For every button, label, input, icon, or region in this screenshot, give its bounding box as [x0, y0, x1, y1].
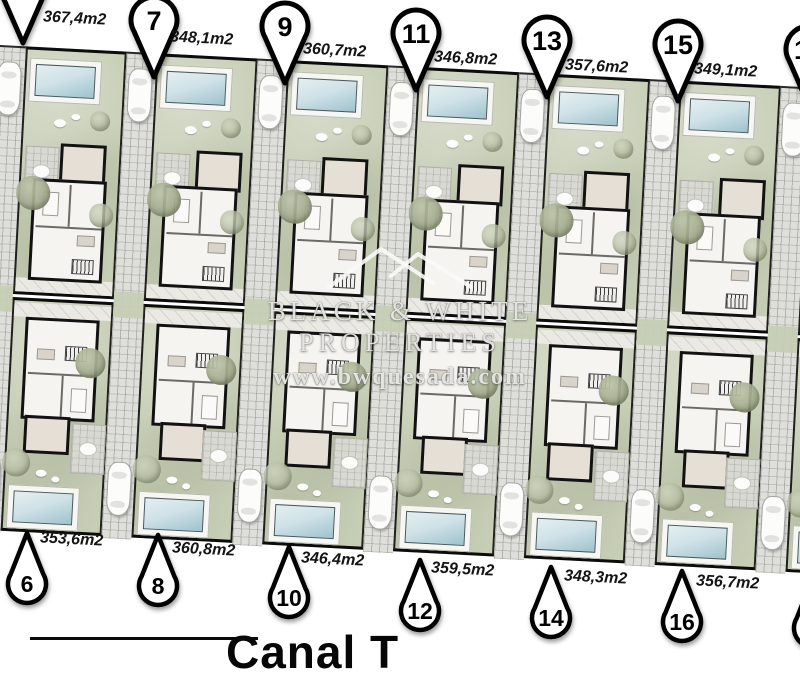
car-bottom: [498, 482, 525, 537]
car-rear-window: [372, 514, 387, 522]
svg-text:13: 13: [532, 26, 562, 56]
interior-wall: [68, 185, 72, 227]
stone: [725, 148, 734, 154]
car-rear-window: [785, 141, 800, 149]
car-windshield: [111, 471, 126, 479]
tree: [89, 203, 114, 228]
table: [469, 256, 488, 268]
tree: [656, 482, 685, 511]
tree: [394, 468, 423, 497]
car-rear-window: [392, 121, 407, 129]
stone: [559, 497, 570, 505]
stone: [51, 476, 59, 482]
driveway-planting: [244, 298, 275, 326]
tree: [220, 118, 241, 139]
patio-table: [80, 443, 97, 456]
pool-deck: [398, 505, 472, 553]
plot-top: [536, 74, 650, 327]
house-lower-room: [159, 422, 207, 462]
car-rear-window: [0, 100, 15, 108]
car-bottom: [236, 468, 263, 523]
house-lower-room: [23, 415, 71, 455]
stone: [464, 134, 473, 140]
stone: [185, 126, 197, 135]
tree: [481, 223, 506, 248]
svg-text:5: 5: [15, 0, 30, 2]
tree: [206, 354, 238, 386]
stairs: [202, 266, 225, 282]
swimming-pool: [404, 511, 466, 546]
tree: [90, 111, 111, 132]
table: [207, 242, 226, 254]
interior-wall: [591, 212, 595, 254]
car-rear-window: [131, 107, 146, 115]
bed: [724, 422, 741, 447]
table: [77, 235, 96, 247]
table: [731, 270, 750, 282]
plot-area-10: 346,4m2: [301, 549, 365, 570]
plot-area-15: 349,1m2: [694, 60, 758, 81]
car-windshield: [655, 105, 670, 113]
stone: [333, 128, 342, 134]
svg-text:14: 14: [538, 605, 564, 631]
car-bottom: [106, 461, 133, 516]
plot-area-7: 348,1m2: [170, 28, 234, 49]
plot-area-13: 357,6m2: [565, 56, 629, 77]
plot-bottom: [655, 331, 768, 570]
car-top: [0, 61, 22, 116]
tree: [219, 210, 244, 235]
stone: [446, 140, 458, 149]
interior-wall: [460, 205, 464, 247]
car-windshield: [504, 492, 519, 500]
swimming-pool: [143, 497, 205, 532]
driveway-planting: [505, 312, 536, 340]
car-rear-window: [633, 528, 648, 536]
car-rear-window: [764, 535, 779, 543]
street-label: Canal T: [226, 625, 399, 679]
table: [560, 376, 579, 388]
pool-deck: [791, 525, 800, 573]
plot-area-6: 353,6m2: [40, 529, 104, 550]
driveway-planting: [636, 319, 667, 347]
stone: [54, 119, 66, 128]
interior-wall: [59, 376, 63, 420]
stone: [315, 133, 327, 142]
stone: [574, 504, 582, 510]
house-lower-room: [682, 449, 730, 489]
car-windshield: [373, 485, 388, 493]
plot-area-11: 346,8m2: [434, 48, 498, 69]
stone: [35, 469, 46, 477]
svg-text:12: 12: [407, 598, 433, 624]
plot-pin-17: 17: [779, 19, 800, 111]
bed: [332, 402, 349, 427]
svg-text:6: 6: [21, 571, 34, 597]
svg-text:9: 9: [277, 12, 292, 42]
tree: [612, 230, 637, 255]
plot-bottom: [524, 324, 637, 563]
table: [429, 369, 448, 381]
patio-table: [734, 477, 751, 490]
driveway-planting: [375, 305, 406, 333]
car-bottom: [367, 475, 394, 530]
patio-table: [341, 456, 358, 469]
svg-text:7: 7: [146, 6, 161, 36]
stone: [690, 504, 701, 512]
svg-text:10: 10: [276, 585, 302, 611]
tree: [482, 131, 503, 152]
interior-wall: [714, 410, 718, 454]
house-lower-room: [284, 429, 332, 469]
car-windshield: [1, 71, 16, 79]
site-plan: [0, 45, 800, 580]
bed: [70, 388, 87, 413]
plot-area-8: 360,8m2: [172, 539, 236, 560]
interior-wall: [722, 219, 726, 261]
driveway-planting: [113, 291, 144, 319]
house-lower-room: [420, 436, 468, 476]
stone: [577, 146, 589, 155]
car-windshield: [786, 112, 800, 120]
site-plan-page: { "brand": { "line1": "BLACK & WHITE", "…: [0, 0, 800, 640]
car-windshield: [766, 506, 781, 514]
stairs: [71, 259, 94, 275]
table: [37, 348, 56, 360]
plot-area-14: 348,3m2: [564, 567, 628, 588]
stone: [594, 141, 603, 147]
patio: [593, 451, 630, 503]
car-rear-window: [523, 128, 538, 136]
interior-wall: [321, 389, 325, 433]
svg-text:15: 15: [663, 30, 693, 60]
stairs: [594, 286, 617, 302]
plot-bottom: [131, 304, 244, 543]
tree: [598, 375, 630, 407]
driveway-planting: [767, 326, 798, 354]
stone: [444, 497, 452, 503]
plot-area-12: 359,5m2: [431, 559, 495, 580]
table: [600, 263, 619, 275]
swimming-pool: [535, 518, 597, 553]
house-lower-room: [546, 442, 594, 482]
plot-top: [667, 81, 781, 334]
stone: [313, 490, 321, 496]
swimming-pool: [274, 504, 336, 539]
interior-wall: [198, 192, 202, 234]
tree: [132, 455, 161, 484]
car-rear-window: [261, 114, 276, 122]
swimming-pool: [34, 64, 96, 99]
patio: [201, 430, 238, 482]
plot-top: [275, 60, 389, 313]
tree: [75, 347, 107, 379]
table: [298, 362, 317, 374]
pool-deck: [267, 498, 341, 546]
patio-table: [603, 470, 620, 483]
plot-top: [405, 67, 519, 320]
interior-wall: [329, 199, 333, 241]
svg-text:17: 17: [794, 35, 800, 65]
swimming-pool: [666, 525, 728, 560]
car-bottom: [760, 496, 787, 551]
car-windshield: [635, 499, 650, 507]
tree: [613, 138, 634, 159]
tree: [467, 368, 499, 400]
plot-top: [13, 46, 127, 299]
stone: [182, 483, 190, 489]
interior-wall: [190, 383, 194, 427]
patio: [724, 458, 761, 510]
plot-area-5: 367,4m2: [43, 8, 107, 29]
patio-table: [472, 463, 489, 476]
table: [167, 355, 186, 367]
car-bottom: [629, 489, 656, 544]
tree: [744, 145, 765, 166]
stone: [71, 114, 80, 120]
car-rear-window: [654, 134, 669, 142]
bed: [593, 416, 610, 441]
plot-pin-18: 18: [787, 574, 800, 654]
stone: [297, 483, 308, 491]
pool-deck: [28, 58, 102, 106]
tree: [336, 361, 368, 393]
svg-text:11: 11: [402, 19, 431, 49]
stone: [166, 476, 177, 484]
interior-wall: [583, 403, 587, 447]
table: [338, 249, 357, 261]
stairs: [333, 273, 356, 289]
stairs: [725, 293, 748, 309]
plot-bottom: [1, 297, 114, 536]
car-rear-window: [241, 507, 256, 515]
plot-bottom: [262, 311, 375, 550]
plot-area-16: 356,7m2: [696, 572, 760, 593]
tree: [729, 382, 761, 414]
car-rear-window: [502, 521, 517, 529]
pool-deck: [529, 511, 603, 559]
stone: [708, 153, 720, 162]
patio: [70, 423, 107, 475]
stone: [705, 511, 713, 517]
stone: [202, 121, 211, 127]
bed: [201, 395, 218, 420]
pool-deck: [6, 484, 80, 532]
plot-top: [144, 53, 258, 306]
tree: [351, 125, 372, 146]
tree: [350, 217, 375, 242]
patio-table: [210, 450, 227, 463]
table: [691, 383, 710, 395]
bed: [462, 409, 479, 434]
car-rear-window: [110, 500, 125, 508]
plot-area-9: 360,7m2: [303, 40, 367, 61]
interior-wall: [452, 396, 456, 440]
car-windshield: [242, 478, 257, 486]
plot-bottom: [393, 318, 506, 557]
tree: [743, 237, 768, 262]
stairs: [464, 280, 487, 296]
pool-deck: [660, 518, 734, 566]
patio: [462, 444, 499, 496]
patio: [331, 437, 368, 489]
stone: [428, 490, 439, 498]
svg-text:16: 16: [669, 609, 695, 635]
svg-text:8: 8: [152, 573, 165, 599]
swimming-pool: [12, 490, 74, 525]
